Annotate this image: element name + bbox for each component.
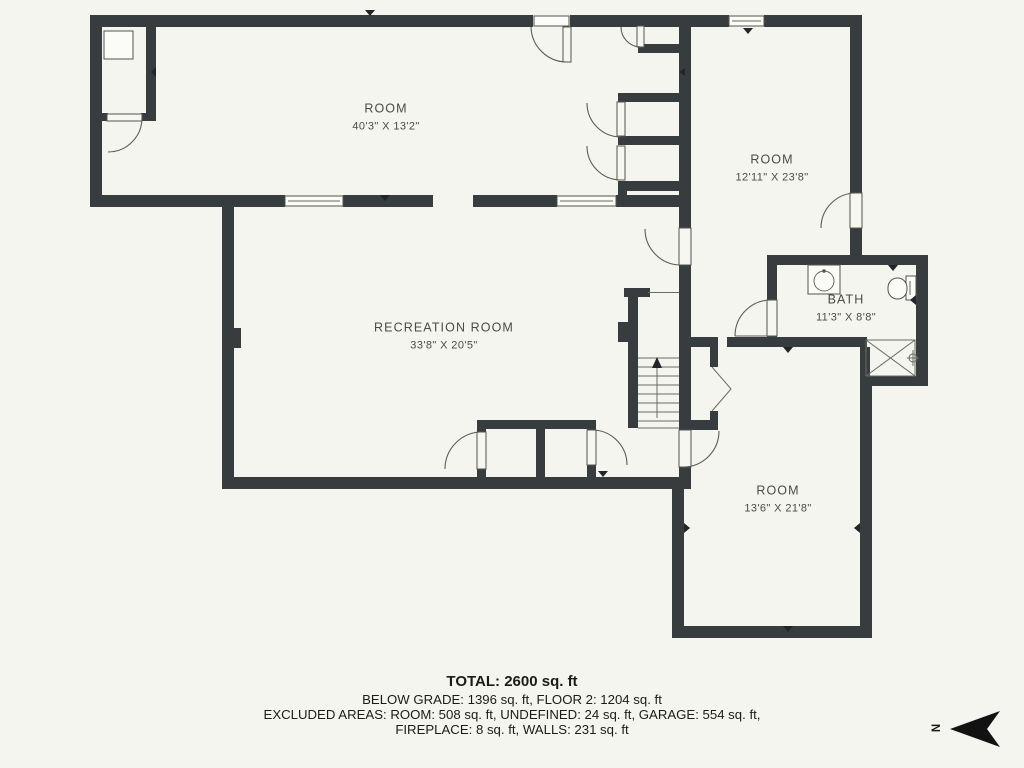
room-label-top-left: ROOM 40'3" X 13'2" — [352, 102, 419, 133]
room-name: RECREATION ROOM — [374, 321, 514, 335]
total-area-text: TOTAL: 2600 sq. ft — [0, 673, 1024, 690]
grade-areas-text: BELOW GRADE: 1396 sq. ft, FLOOR 2: 1204 … — [0, 692, 1024, 707]
room-name: BATH — [816, 293, 876, 307]
area-summary: TOTAL: 2600 sq. ft BELOW GRADE: 1396 sq.… — [0, 673, 1024, 737]
toilet — [888, 276, 916, 300]
door-arc — [531, 27, 567, 62]
shower — [866, 340, 919, 376]
wall-ticks — [151, 10, 916, 632]
room-dimensions: 40'3" X 13'2" — [352, 121, 419, 133]
stairs-up-arrowhead — [652, 357, 662, 368]
north-label: N — [931, 721, 945, 735]
room-name: ROOM — [352, 102, 419, 116]
sink — [808, 265, 840, 294]
door-arc — [645, 229, 681, 265]
floor-plan-drawing — [0, 0, 1024, 768]
door-arc — [445, 432, 482, 469]
excluded-areas-text-2: FIREPLACE: 8 sq. ft, WALLS: 231 sq. ft — [0, 722, 1024, 737]
angled-wall-marker — [712, 367, 731, 411]
door-threshold — [534, 16, 569, 26]
excluded-areas-text-1: EXCLUDED AREAS: ROOM: 508 sq. ft, UNDEFI… — [0, 707, 1024, 722]
room-dimensions: 33'8" X 20'5" — [374, 340, 514, 352]
room-label-top-right: ROOM 12'11" X 23'8" — [735, 153, 808, 184]
water-heater — [104, 31, 133, 59]
door-arc — [587, 146, 621, 180]
room-name: ROOM — [744, 484, 811, 498]
door-arc — [108, 118, 142, 152]
door-arc — [735, 300, 771, 336]
room-dimensions: 11'3" X 8'8" — [816, 312, 876, 324]
room-dimensions: 12'11" X 23'8" — [735, 172, 808, 184]
room-label-recreation-room: RECREATION ROOM 33'8" X 20'5" — [374, 321, 514, 352]
staircase — [638, 293, 679, 429]
floor-plan-canvas: ROOM 40'3" X 13'2" ROOM 12'11" X 23'8" R… — [0, 0, 1024, 768]
room-label-bottom-right: ROOM 13'6" X 21'8" — [744, 484, 811, 515]
room-dimensions: 13'6" X 21'8" — [744, 503, 811, 515]
door-arc — [592, 430, 627, 465]
door-arc — [587, 103, 621, 137]
room-label-bath: BATH 11'3" X 8'8" — [816, 293, 876, 324]
doors — [107, 26, 862, 469]
room-name: ROOM — [735, 153, 808, 167]
